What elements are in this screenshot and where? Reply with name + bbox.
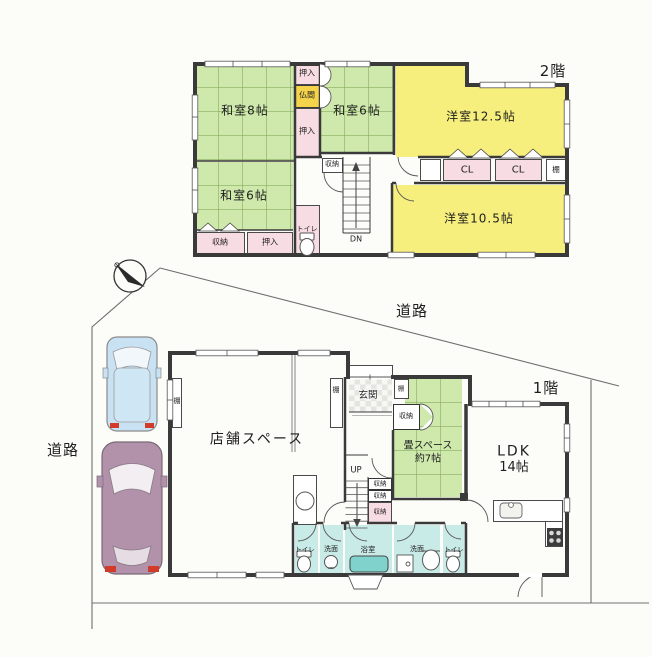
closet-label-shuno-entry: 収納 [399, 413, 413, 421]
entrance-sliding-door [350, 374, 391, 379]
windows-2f [192, 61, 570, 258]
washing-machine-icon [397, 555, 413, 572]
closet-label-tana-entry: 棚 [398, 385, 405, 392]
fixture-label-senmen-left: 洗面 [324, 546, 338, 554]
room-label-yoshitsu125: 洋室12.5帖 [446, 110, 516, 123]
walls-2f [195, 64, 567, 255]
fixture-label-toilet-2f: トイレ [297, 226, 318, 234]
washbasin-icon-right [422, 550, 440, 570]
room-label-tatami-size: 約7帖 [415, 454, 441, 465]
room-label-ldk-size: 14帖 [499, 461, 529, 475]
closet-label-shuno-1: 収納 [374, 480, 387, 487]
room-label-tatami-name: 畳スペース [404, 441, 453, 452]
shop-counter-circle [296, 492, 314, 510]
room-label-washitsu8: 和室8帖 [221, 104, 269, 117]
fixture-label-toilet-1f-right: トイレ [444, 546, 464, 553]
closet-label-cl-left: CL [461, 165, 474, 176]
closet-label-tana-shop-left: 棚 [174, 398, 181, 406]
floor-title-2f: 2階 [540, 63, 567, 80]
toilet-icon-1f-left [297, 551, 311, 572]
stairs-2f [344, 162, 370, 229]
stove-icon [547, 528, 563, 546]
bathtub-icon [348, 556, 388, 589]
room-label-bath: 浴室 [361, 546, 376, 554]
closet-label-butsuma: 仏間 [299, 92, 315, 101]
room-label-shop: 店舗スペース [210, 432, 304, 447]
closet-label-tana-shop-right: 棚 [333, 387, 340, 395]
room-label-washitsu6-top: 和室6帖 [333, 104, 381, 117]
closet-label-tana-2f: 棚 [552, 166, 560, 174]
stairs-label-up: UP [350, 466, 361, 475]
fixture-label-senmen-right: 洗面 [410, 546, 424, 554]
room-label-yoshitsu105: 洋室10.5帖 [444, 212, 514, 225]
washbasin-icon-left [325, 556, 338, 569]
floor-title-1f: 1階 [533, 380, 560, 397]
closet-label-oshiire-mid: 押入 [299, 128, 315, 137]
car-blue [103, 337, 161, 431]
closet-label-shuno-2: 収納 [374, 492, 387, 499]
closet-label-shuno-stair: 収納 [325, 161, 339, 169]
toilet-icon-1f-right [446, 551, 460, 572]
closet-label-shuno-3: 収納 [374, 508, 387, 515]
road-label-left: 道路 [47, 442, 79, 459]
stairs-1f [346, 481, 368, 528]
road-label-top: 道路 [396, 303, 428, 320]
car-purple [97, 442, 167, 574]
closet-label-shuno-bottom-2f: 収納 [212, 239, 228, 248]
fixture-label-toilet-1f-left: トイレ [295, 546, 315, 553]
closet-label-oshiire-bottom-2f: 押入 [262, 239, 278, 248]
closet-label-oshiire-top: 押入 [299, 70, 315, 79]
door-arcs-1f [298, 404, 542, 597]
kitchen-sink-icon [500, 503, 522, 518]
room-label-ldk: LDK [497, 444, 531, 459]
compass-icon [114, 260, 146, 292]
floorplan-graphics [0, 0, 652, 657]
stairs-label-dn: DN [350, 236, 362, 245]
floorplan-canvas: 2階 1階 道路 道路 和室8帖 和室6帖 洋室12.5帖 和室6帖 洋室10.… [0, 0, 652, 657]
room-label-genkan: 玄関 [358, 391, 377, 401]
room-label-washitsu6-left: 和室6帖 [220, 189, 268, 202]
door-arcs-2f [320, 64, 418, 201]
toilet-icon-2f [300, 233, 314, 256]
closet-label-cl-right: CL [512, 165, 525, 176]
